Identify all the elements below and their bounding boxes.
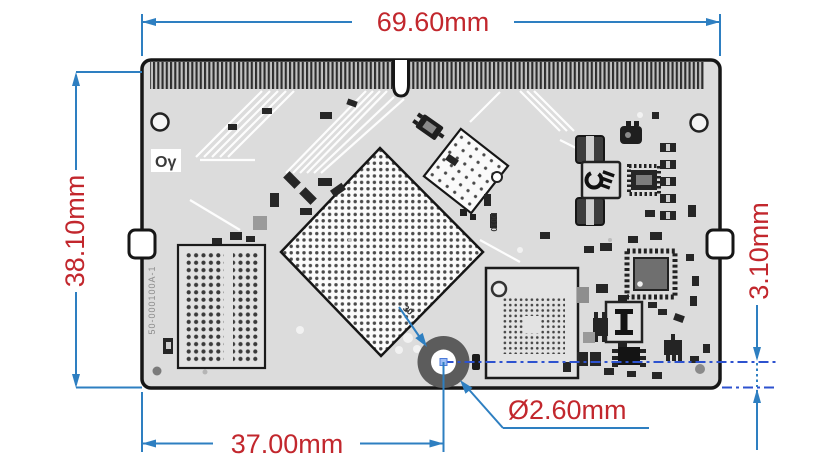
leader-diagonal [464, 384, 503, 428]
label-hole-diameter: Ø2.60mm [508, 395, 627, 425]
side-notch-right [707, 230, 733, 258]
pcb-board: Oγ 50-000100A-1 [129, 60, 733, 388]
refdes-d010: D010 [489, 212, 498, 232]
label-board-width: 69.60mm [377, 7, 490, 37]
soic-chip [629, 166, 659, 194]
part-number-text: 50-000100A-1 [147, 265, 157, 334]
label-hole-from-left: 37.00mm [231, 429, 344, 459]
silkscreen-logo: Oγ [151, 149, 181, 172]
corner-hole-right [691, 115, 708, 132]
qfn-chip [627, 251, 675, 297]
corner-hole-left [152, 114, 169, 131]
side-notch-left [129, 230, 155, 258]
capacitor-striped-2 [576, 198, 604, 225]
label-board-height: 38.10mm [60, 175, 90, 288]
logo-text: Oγ [155, 154, 176, 171]
bga-footprint-left [178, 245, 265, 368]
pcb-dimension-drawing: Oγ 50-000100A-1 [0, 0, 833, 473]
connector-key-notch [394, 60, 409, 96]
edge-connector-fingers-left [150, 62, 392, 89]
capacitor-striped-1 [576, 136, 604, 163]
edge-connector-fingers-right [410, 62, 704, 89]
label-hole-from-bottom: 3.10mm [744, 202, 774, 300]
boxed-ic-logo [582, 162, 620, 198]
boxed-ic-i-mark [606, 295, 642, 349]
